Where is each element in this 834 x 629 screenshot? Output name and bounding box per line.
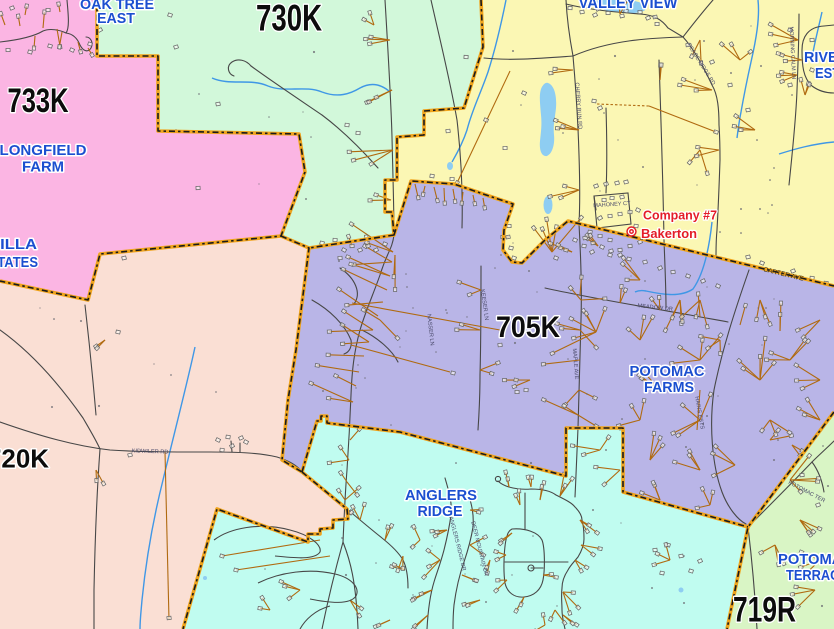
svg-text:705K: 705K [496,311,560,344]
svg-text:TERRACE: TERRACE [786,567,834,584]
svg-text:KIDWILER RD: KIDWILER RD [132,448,169,455]
svg-text:ESTATES: ESTATES [0,254,38,271]
svg-text:Bakerton: Bakerton [641,226,697,241]
svg-text:VALLEY VIEW: VALLEY VIEW [579,0,679,12]
svg-text:Company #7: Company #7 [643,208,717,223]
svg-text:720K: 720K [0,444,49,474]
svg-text:POTOMAC: POTOMAC [778,551,834,568]
svg-text:LONGFIELD: LONGFIELD [0,142,87,159]
svg-text:RIVER: RIVER [804,49,834,66]
svg-text:FARM: FARM [22,159,64,176]
svg-text:ESTATES: ESTATES [815,65,834,82]
svg-text:ANGLERS: ANGLERS [405,487,477,504]
svg-text:730K: 730K [256,0,322,39]
svg-text:719R: 719R [733,591,796,629]
svg-text:VILLA: VILLA [0,236,37,253]
svg-text:POTOMAC: POTOMAC [630,363,705,380]
svg-text:FARMS: FARMS [644,379,694,396]
svg-text:RIDGE: RIDGE [418,503,463,520]
svg-text:733K: 733K [8,82,69,120]
svg-text:EAST: EAST [97,10,135,27]
